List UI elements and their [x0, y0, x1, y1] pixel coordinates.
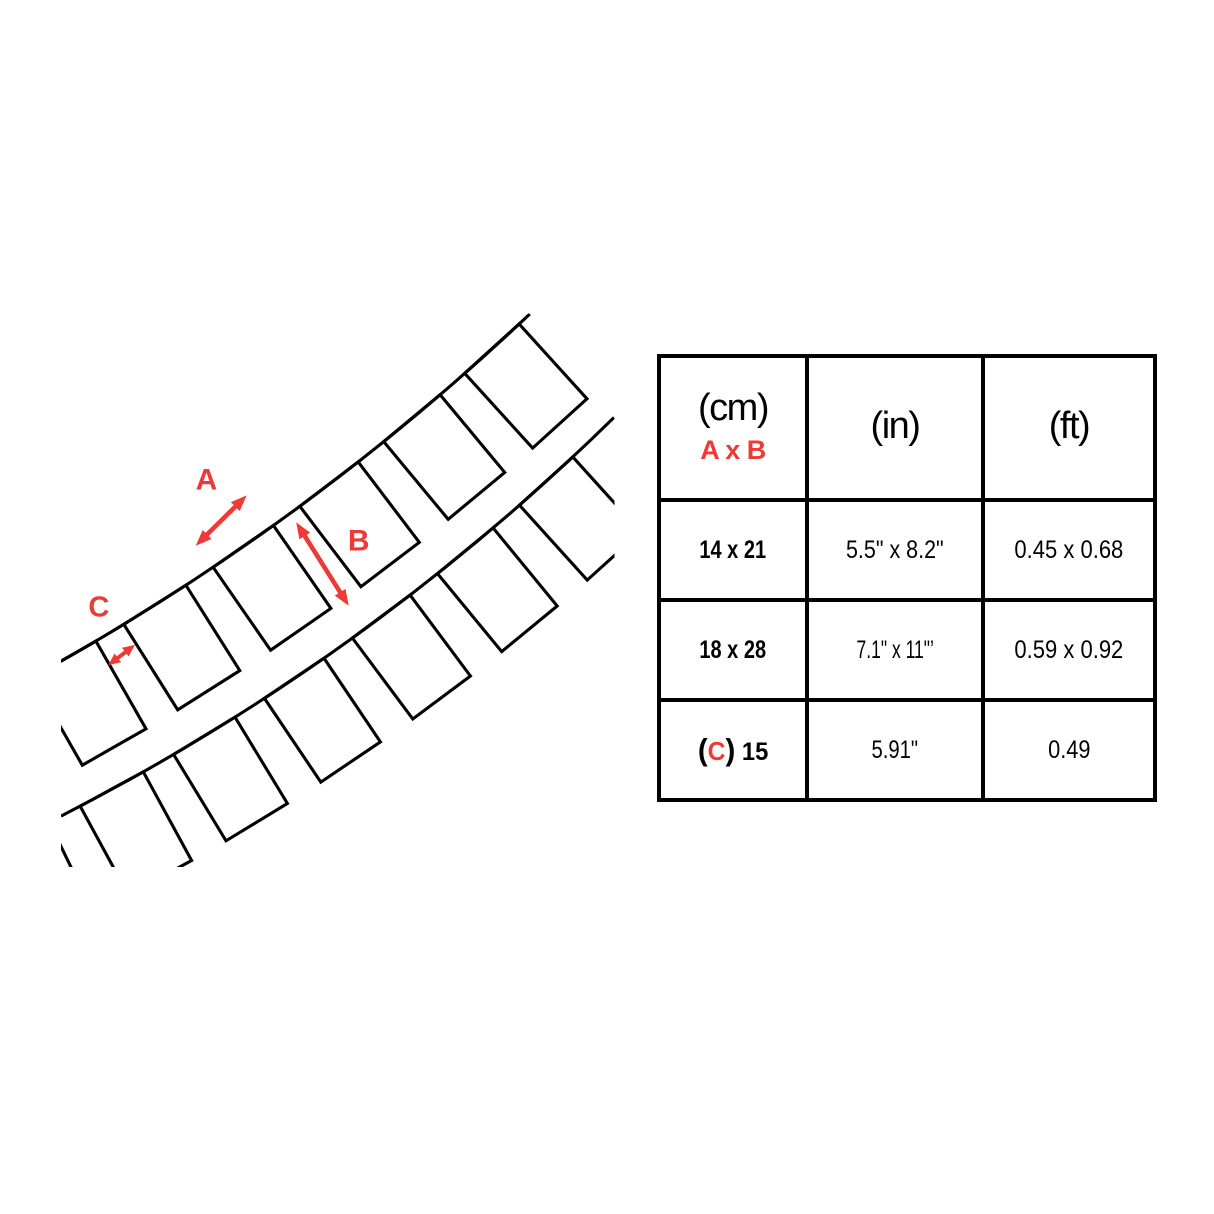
svg-text:B: B — [348, 525, 370, 558]
svg-text:A: A — [196, 464, 218, 497]
svg-text:C: C — [88, 591, 109, 623]
